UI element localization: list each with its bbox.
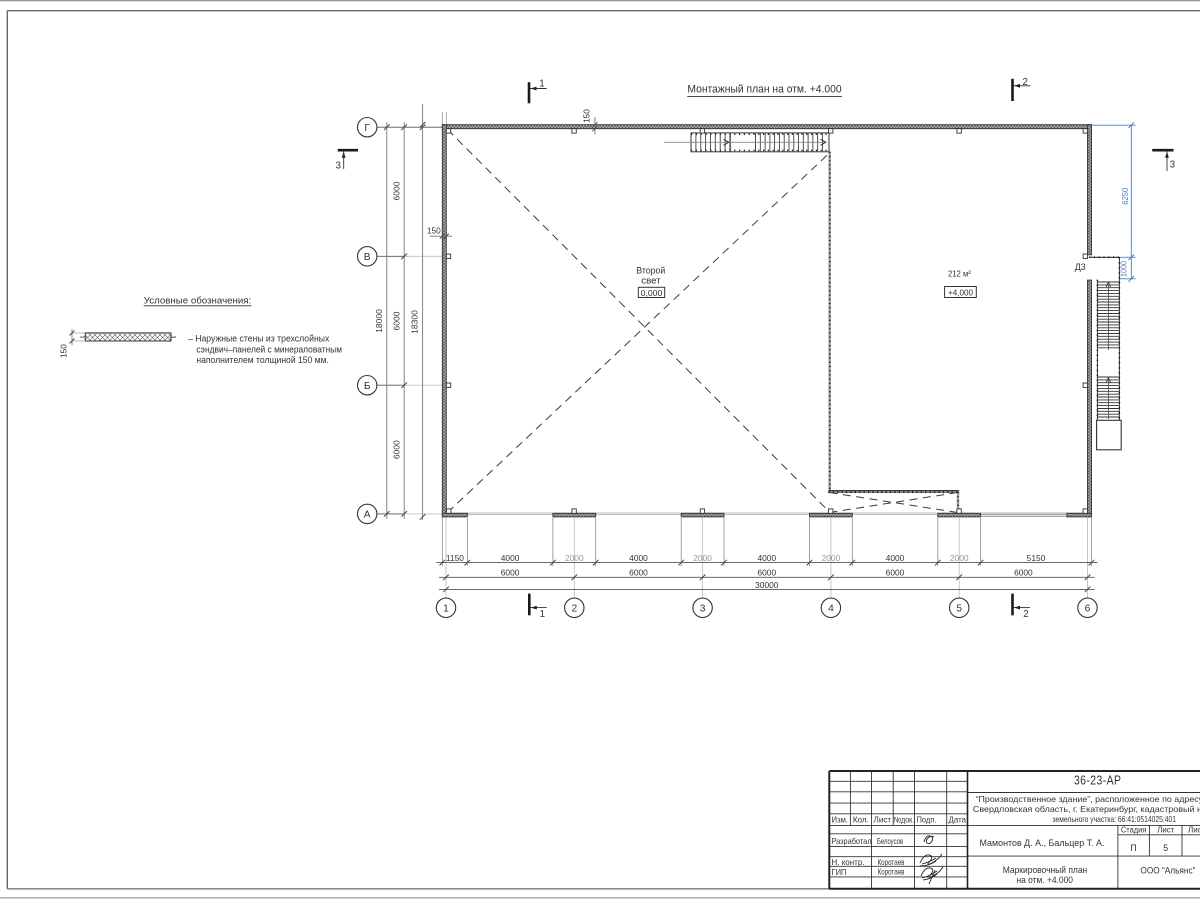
svg-text:ГИП: ГИП [832,868,847,877]
svg-text:30000: 30000 [755,580,779,590]
svg-text:2000: 2000 [950,553,969,563]
svg-text:3: 3 [335,160,341,171]
svg-text:+4,000: +4,000 [948,288,973,298]
svg-text:свет: свет [641,276,660,286]
svg-text:Б: Б [364,381,371,392]
svg-text:2000: 2000 [693,553,712,563]
svg-text:Разработал: Разработал [832,837,872,846]
svg-text:2: 2 [1022,77,1027,88]
svg-text:“Производственное здание”, рас: “Производственное здание”, расположенное… [976,794,1200,804]
svg-text:Подп.: Подп. [917,815,937,825]
svg-text:1: 1 [539,79,544,90]
svg-text:Монтажный план на отм. +4.000: Монтажный план на отм. +4.000 [687,83,841,95]
svg-text:№док.: №док. [894,815,915,825]
svg-text:А: А [364,510,371,521]
svg-text:Д3: Д3 [1075,262,1086,272]
svg-text:36-23-АР: 36-23-АР [1074,773,1122,787]
svg-text:150: 150 [427,226,441,236]
svg-text:6000: 6000 [1014,568,1033,578]
svg-text:1: 1 [443,603,449,614]
svg-text:Дата: Дата [949,815,967,825]
svg-text:6000: 6000 [757,568,776,578]
svg-text:Коротаев: Коротаев [878,868,905,877]
svg-text:5: 5 [1163,843,1168,853]
svg-text:земельного участка: 66:41:0514: земельного участка: 66:41:0514025:401 [1053,814,1177,824]
svg-text:1: 1 [540,609,545,620]
svg-text:4000: 4000 [757,553,776,563]
svg-text:1000: 1000 [1119,261,1129,277]
svg-text:3: 3 [1170,160,1176,171]
svg-text:4000: 4000 [886,553,905,563]
svg-text:6000: 6000 [629,568,648,578]
svg-text:1150: 1150 [446,553,464,563]
svg-text:6250: 6250 [1120,187,1130,204]
svg-text:2000: 2000 [565,553,584,563]
svg-text:П: П [1130,843,1136,853]
svg-text:6000: 6000 [392,440,402,459]
svg-text:Стадия: Стадия [1121,825,1147,835]
svg-text:Второй: Второй [636,266,665,276]
svg-text:5: 5 [956,603,962,614]
svg-text:6000: 6000 [886,568,905,578]
svg-text:Кол.: Кол. [853,815,869,825]
svg-text:18300: 18300 [410,310,420,334]
svg-text:В: В [364,252,371,263]
svg-text:4000: 4000 [629,553,648,563]
svg-text:Условные обозначения:: Условные обозначения: [144,295,252,306]
svg-text:18000: 18000 [374,309,384,333]
svg-text:Изм.: Изм. [832,815,849,825]
svg-text:6000: 6000 [392,181,402,200]
svg-text:Н. контр.: Н. контр. [832,858,865,867]
svg-text:Белоусов: Белоусов [877,837,903,846]
svg-text:150: 150 [58,344,68,358]
svg-text:Лист: Лист [1157,825,1174,835]
svg-text:2: 2 [571,603,577,614]
svg-text:Г: Г [364,123,370,134]
svg-text:– Наружные стены из трехслойны: – Наружные стены из трехслойных [188,333,330,343]
svg-text:0,000: 0,000 [641,288,663,298]
svg-text:212 м²: 212 м² [948,269,971,279]
svg-text:наполнителем толщиной 150 мм.: наполнителем толщиной 150 мм. [196,355,329,365]
svg-text:4000: 4000 [501,553,520,563]
svg-text:2: 2 [1023,609,1028,620]
svg-text:3: 3 [700,603,706,614]
svg-text:Мамонтов Д. А., Бальцер Т. А.: Мамонтов Д. А., Бальцер Т. А. [980,838,1105,848]
svg-text:6000: 6000 [392,311,402,330]
svg-text:сэндвич–панелей с минераловатн: сэндвич–панелей с минераловатным [196,344,342,354]
svg-text:Маркировочный план: Маркировочный план [1003,865,1088,875]
svg-text:на отм. +4.000: на отм. +4.000 [1016,875,1073,885]
svg-text:Коротаев: Коротаев [878,858,905,867]
svg-text:6: 6 [1085,603,1091,614]
svg-text:ООО “Альянс”: ООО “Альянс” [1140,866,1195,876]
svg-text:5150: 5150 [1027,553,1046,563]
svg-text:6000: 6000 [501,568,520,578]
svg-text:150: 150 [582,109,592,123]
svg-text:2000: 2000 [822,553,841,563]
svg-text:Лист: Лист [874,815,892,825]
svg-text:Свердловская область, г. Екате: Свердловская область, г. Екатеринбург, к… [973,804,1200,814]
svg-text:4: 4 [828,603,834,614]
svg-text:Листов: Листов [1188,825,1200,835]
